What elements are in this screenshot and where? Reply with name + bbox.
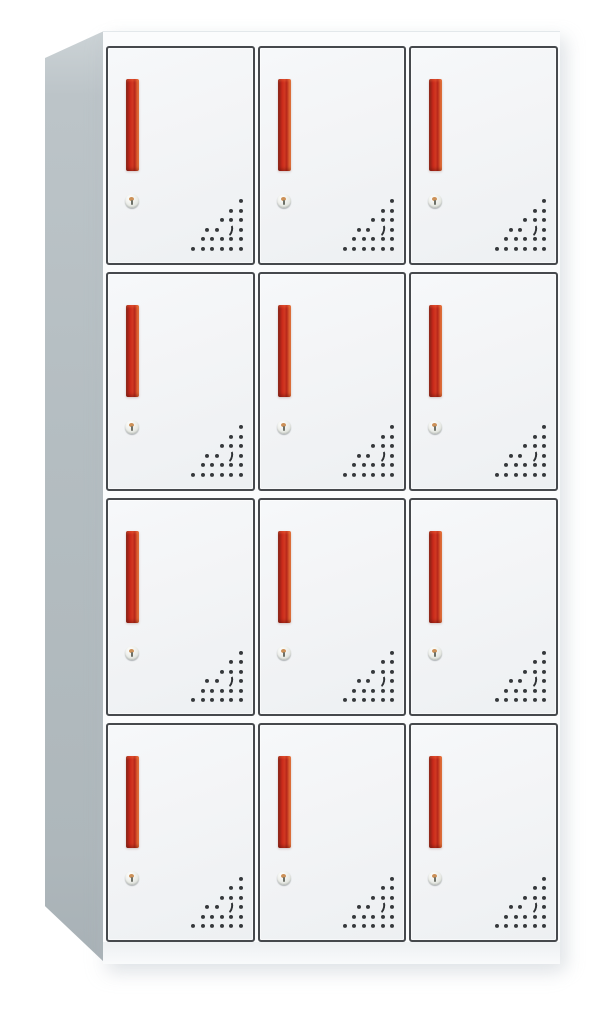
vent-dot-icon [542,199,546,203]
door-handle-icon [278,79,291,171]
vent-dot-icon [366,454,370,458]
door-handle-icon [278,756,291,848]
vent-row [542,425,546,429]
vent-dot-icon [220,463,224,467]
vent-dot-icon [229,660,233,664]
vent-row [191,473,243,477]
vent-dot-icon [239,877,243,881]
keyhole-lock-icon [125,420,139,434]
vent-row [352,237,394,241]
vent-row [504,237,546,241]
vent-dot-icon [390,651,394,655]
vent-dot-icon [390,924,394,928]
vent-holes [191,651,243,703]
vent-dot-icon [542,444,546,448]
vent-dot-icon [229,915,233,919]
vent-dot-icon [352,247,356,251]
door-handle-icon [429,305,442,397]
vent-row [220,444,243,448]
vent-row [533,209,547,213]
vent-dot-icon [210,463,214,467]
vent-dot-icon [229,444,233,448]
vent-dot-icon [215,454,219,458]
vent-row [239,425,243,429]
vent-dot-icon [495,698,499,702]
vent-row [371,896,394,900]
vent-dot-icon [533,660,537,664]
vent-holes [191,199,243,251]
vent-row [357,454,395,458]
vent-dot-icon [509,679,513,683]
vent-row [371,218,394,222]
vent-dot-icon [533,698,537,702]
keyhole-lock-icon [277,871,291,885]
vent-dot-icon [390,228,394,232]
vent-row [229,886,243,890]
locker-door-r4-c1 [106,723,255,942]
vent-dot-icon [352,924,356,928]
vent-dot-icon [229,473,233,477]
vent-dot-icon [239,886,243,890]
vent-dot-icon [220,218,224,222]
vent-dot-icon [518,454,522,458]
vent-holes [495,199,547,251]
vent-dot-icon [381,473,385,477]
vent-crescent-icon [374,448,386,464]
vent-dot-icon [210,237,214,241]
keyhole-lock-icon [277,194,291,208]
vent-dot-icon [229,924,233,928]
door-handle-icon [429,531,442,623]
vent-dot-icon [542,698,546,702]
vent-dot-icon [239,218,243,222]
vent-dot-icon [371,698,375,702]
vent-row [542,877,546,881]
vent-dot-icon [362,463,366,467]
vent-dot-icon [381,660,385,664]
door-handle-icon [126,79,139,171]
vent-dot-icon [514,698,518,702]
vent-dot-icon [542,454,546,458]
vent-dot-icon [390,886,394,890]
vent-holes [343,425,395,477]
vent-row [495,698,547,702]
vent-dot-icon [542,670,546,674]
locker-door-r1-c1 [106,46,255,265]
vent-row [509,454,547,458]
vent-dot-icon [201,247,205,251]
vent-dot-icon [239,209,243,213]
cabinet-side-panel [45,31,104,962]
vent-row [205,228,243,232]
vent-dot-icon [352,915,356,919]
vent-crescent-icon [526,899,538,915]
vent-dot-icon [371,247,375,251]
vent-dot-icon [533,218,537,222]
vent-dot-icon [220,915,224,919]
locker-door-r2-c1 [106,272,255,491]
vent-row [390,199,394,203]
vent-dot-icon [390,199,394,203]
vent-dot-icon [390,670,394,674]
vent-dot-icon [381,209,385,213]
vent-row [495,247,547,251]
vent-dot-icon [201,463,205,467]
vent-dot-icon [390,463,394,467]
vent-dot-icon [362,698,366,702]
vent-row [229,209,243,213]
vent-dot-icon [542,228,546,232]
vent-dot-icon [239,698,243,702]
vent-dot-icon [215,679,219,683]
vent-dot-icon [366,228,370,232]
vent-row [509,228,547,232]
vent-row [229,660,243,664]
vent-dot-icon [509,228,513,232]
vent-dot-icon [523,473,527,477]
vent-dot-icon [239,247,243,251]
vent-row [201,689,243,693]
vent-dot-icon [542,218,546,222]
base-plinth [103,942,560,964]
vent-row [495,924,547,928]
vent-dot-icon [542,896,546,900]
door-grid [106,46,558,942]
vent-dot-icon [362,473,366,477]
vent-dot-icon [239,435,243,439]
vent-dot-icon [381,435,385,439]
vent-dot-icon [390,896,394,900]
vent-dot-icon [239,896,243,900]
vent-row [343,473,395,477]
vent-dot-icon [205,454,209,458]
vent-dot-icon [210,247,214,251]
vent-holes [191,877,243,929]
vent-row [371,670,394,674]
door-handle-icon [278,305,291,397]
vent-dot-icon [229,435,233,439]
vent-dot-icon [191,924,195,928]
vent-dot-icon [533,209,537,213]
door-handle-icon [429,79,442,171]
vent-dot-icon [239,651,243,655]
vent-dot-icon [504,698,508,702]
vent-dot-icon [518,228,522,232]
vent-row [201,915,243,919]
vent-dot-icon [371,915,375,919]
vent-dot-icon [229,896,233,900]
vent-dot-icon [352,237,356,241]
vent-crescent-icon [223,448,235,464]
vent-dot-icon [229,698,233,702]
vent-dot-icon [210,924,214,928]
locker-door-r4-c2 [258,723,407,942]
vent-dot-icon [390,698,394,702]
vent-dot-icon [542,915,546,919]
locker-door-r1-c3 [409,46,558,265]
vent-dot-icon [542,463,546,467]
vent-crescent-icon [223,222,235,238]
vent-dot-icon [514,915,518,919]
vent-dot-icon [509,454,513,458]
vent-row [495,473,547,477]
locker-door-r2-c2 [258,272,407,491]
vent-dot-icon [542,435,546,439]
vent-dot-icon [366,905,370,909]
vent-row [205,679,243,683]
vent-row [229,435,243,439]
vent-row [542,199,546,203]
vent-row [381,886,395,890]
vent-dot-icon [390,915,394,919]
vent-dot-icon [514,247,518,251]
vent-dot-icon [366,679,370,683]
vent-dot-icon [362,915,366,919]
vent-dot-icon [381,237,385,241]
door-handle-icon [126,305,139,397]
vent-row [504,689,546,693]
vent-dot-icon [381,915,385,919]
vent-dot-icon [201,237,205,241]
vent-row [381,435,395,439]
vent-holes [343,651,395,703]
vent-dot-icon [381,896,385,900]
vent-row [343,924,395,928]
locker-door-r1-c2 [258,46,407,265]
vent-dot-icon [229,463,233,467]
vent-dot-icon [542,237,546,241]
vent-dot-icon [390,237,394,241]
vent-dot-icon [357,228,361,232]
vent-row [220,896,243,900]
vent-dot-icon [504,463,508,467]
vent-dot-icon [390,905,394,909]
vent-dot-icon [523,247,527,251]
vent-dot-icon [371,463,375,467]
vent-dot-icon [210,689,214,693]
vent-dot-icon [514,237,518,241]
vent-row [509,905,547,909]
vent-row [201,463,243,467]
vent-holes [343,199,395,251]
vent-dot-icon [504,247,508,251]
vent-row [371,444,394,448]
vent-dot-icon [371,473,375,477]
vent-dot-icon [381,218,385,222]
vent-dot-icon [533,896,537,900]
vent-dot-icon [523,444,527,448]
vent-dot-icon [504,915,508,919]
vent-dot-icon [239,444,243,448]
vent-dot-icon [229,237,233,241]
vent-dot-icon [229,209,233,213]
vent-row [239,877,243,881]
vent-dot-icon [371,896,375,900]
vent-dot-icon [533,886,537,890]
vent-dot-icon [542,247,546,251]
vent-crescent-icon [526,222,538,238]
vent-row [381,660,395,664]
vent-row [523,218,546,222]
vent-dot-icon [523,689,527,693]
vent-dot-icon [343,698,347,702]
vent-dot-icon [220,247,224,251]
vent-dot-icon [239,905,243,909]
locker-door-r4-c3 [409,723,558,942]
vent-row [390,877,394,881]
keyhole-lock-icon [125,646,139,660]
vent-dot-icon [390,660,394,664]
vent-dot-icon [495,924,499,928]
vent-dot-icon [390,877,394,881]
vent-holes [495,877,547,929]
vent-dot-icon [352,463,356,467]
vent-dot-icon [201,915,205,919]
vent-row [220,218,243,222]
vent-crescent-icon [374,222,386,238]
vent-dot-icon [220,689,224,693]
vent-dot-icon [371,218,375,222]
vent-dot-icon [390,473,394,477]
vent-row [352,463,394,467]
vent-dot-icon [542,425,546,429]
keyhole-lock-icon [125,194,139,208]
vent-dot-icon [239,473,243,477]
vent-dot-icon [514,689,518,693]
vent-dot-icon [533,247,537,251]
vent-crescent-icon [526,673,538,689]
vent-dot-icon [205,679,209,683]
locker-door-r3-c1 [106,498,255,717]
vent-crescent-icon [223,899,235,915]
vent-dot-icon [504,924,508,928]
locker-door-r3-c3 [409,498,558,717]
vent-dot-icon [357,679,361,683]
vent-dot-icon [229,886,233,890]
vent-dot-icon [495,473,499,477]
vent-dot-icon [542,886,546,890]
vent-dot-icon [239,915,243,919]
vent-row [533,435,547,439]
vent-dot-icon [191,247,195,251]
vent-dot-icon [523,670,527,674]
cabinet-front [103,31,560,964]
vent-dot-icon [220,473,224,477]
vent-row [533,886,547,890]
vent-dot-icon [533,915,537,919]
vent-dot-icon [390,689,394,693]
door-handle-icon [278,531,291,623]
vent-dot-icon [390,454,394,458]
vent-dot-icon [504,473,508,477]
vent-dot-icon [523,924,527,928]
vent-dot-icon [239,228,243,232]
vent-dot-icon [201,924,205,928]
door-handle-icon [126,756,139,848]
vent-dot-icon [371,689,375,693]
vent-row [523,670,546,674]
locker-door-r3-c2 [258,498,407,717]
keyhole-lock-icon [277,646,291,660]
keyhole-lock-icon [428,646,442,660]
vent-dot-icon [390,247,394,251]
vent-row [352,915,394,919]
keyhole-lock-icon [428,871,442,885]
vent-dot-icon [229,247,233,251]
vent-holes [495,425,547,477]
vent-dot-icon [542,473,546,477]
vent-dot-icon [390,425,394,429]
vent-dot-icon [210,915,214,919]
vent-dot-icon [542,679,546,683]
locker-product-photo [0,0,605,1009]
vent-dot-icon [533,689,537,693]
door-handle-icon [429,756,442,848]
vent-dot-icon [220,698,224,702]
vent-dot-icon [229,218,233,222]
vent-dot-icon [542,209,546,213]
vent-row [357,228,395,232]
vent-dot-icon [357,905,361,909]
door-handle-icon [126,531,139,623]
vent-dot-icon [523,896,527,900]
vent-dot-icon [504,237,508,241]
vent-dot-icon [381,924,385,928]
vent-crescent-icon [223,673,235,689]
vent-dot-icon [239,199,243,203]
vent-dot-icon [514,924,518,928]
keyhole-lock-icon [428,194,442,208]
vent-crescent-icon [526,448,538,464]
vent-dot-icon [220,670,224,674]
vent-dot-icon [220,896,224,900]
vent-dot-icon [371,924,375,928]
vent-row [533,660,547,664]
vent-dot-icon [504,689,508,693]
vent-dot-icon [533,473,537,477]
vent-dot-icon [509,905,513,909]
vent-holes [191,425,243,477]
vent-dot-icon [390,209,394,213]
vent-dot-icon [523,915,527,919]
vent-dot-icon [533,463,537,467]
vent-row [357,905,395,909]
vent-row [509,679,547,683]
vent-dot-icon [542,924,546,928]
vent-dot-icon [239,463,243,467]
vent-dot-icon [343,473,347,477]
vent-row [523,896,546,900]
vent-dot-icon [201,473,205,477]
vent-row [239,651,243,655]
vent-dot-icon [191,698,195,702]
vent-row [220,670,243,674]
vent-dot-icon [210,698,214,702]
vent-dot-icon [205,905,209,909]
vent-dot-icon [210,473,214,477]
vent-dot-icon [523,237,527,241]
vent-dot-icon [343,924,347,928]
vent-row [205,454,243,458]
vent-crescent-icon [374,899,386,915]
vent-row [542,651,546,655]
vent-dot-icon [239,454,243,458]
keyhole-lock-icon [277,420,291,434]
vent-dot-icon [229,689,233,693]
vent-row [191,698,243,702]
vent-dot-icon [390,218,394,222]
vent-holes [343,877,395,929]
